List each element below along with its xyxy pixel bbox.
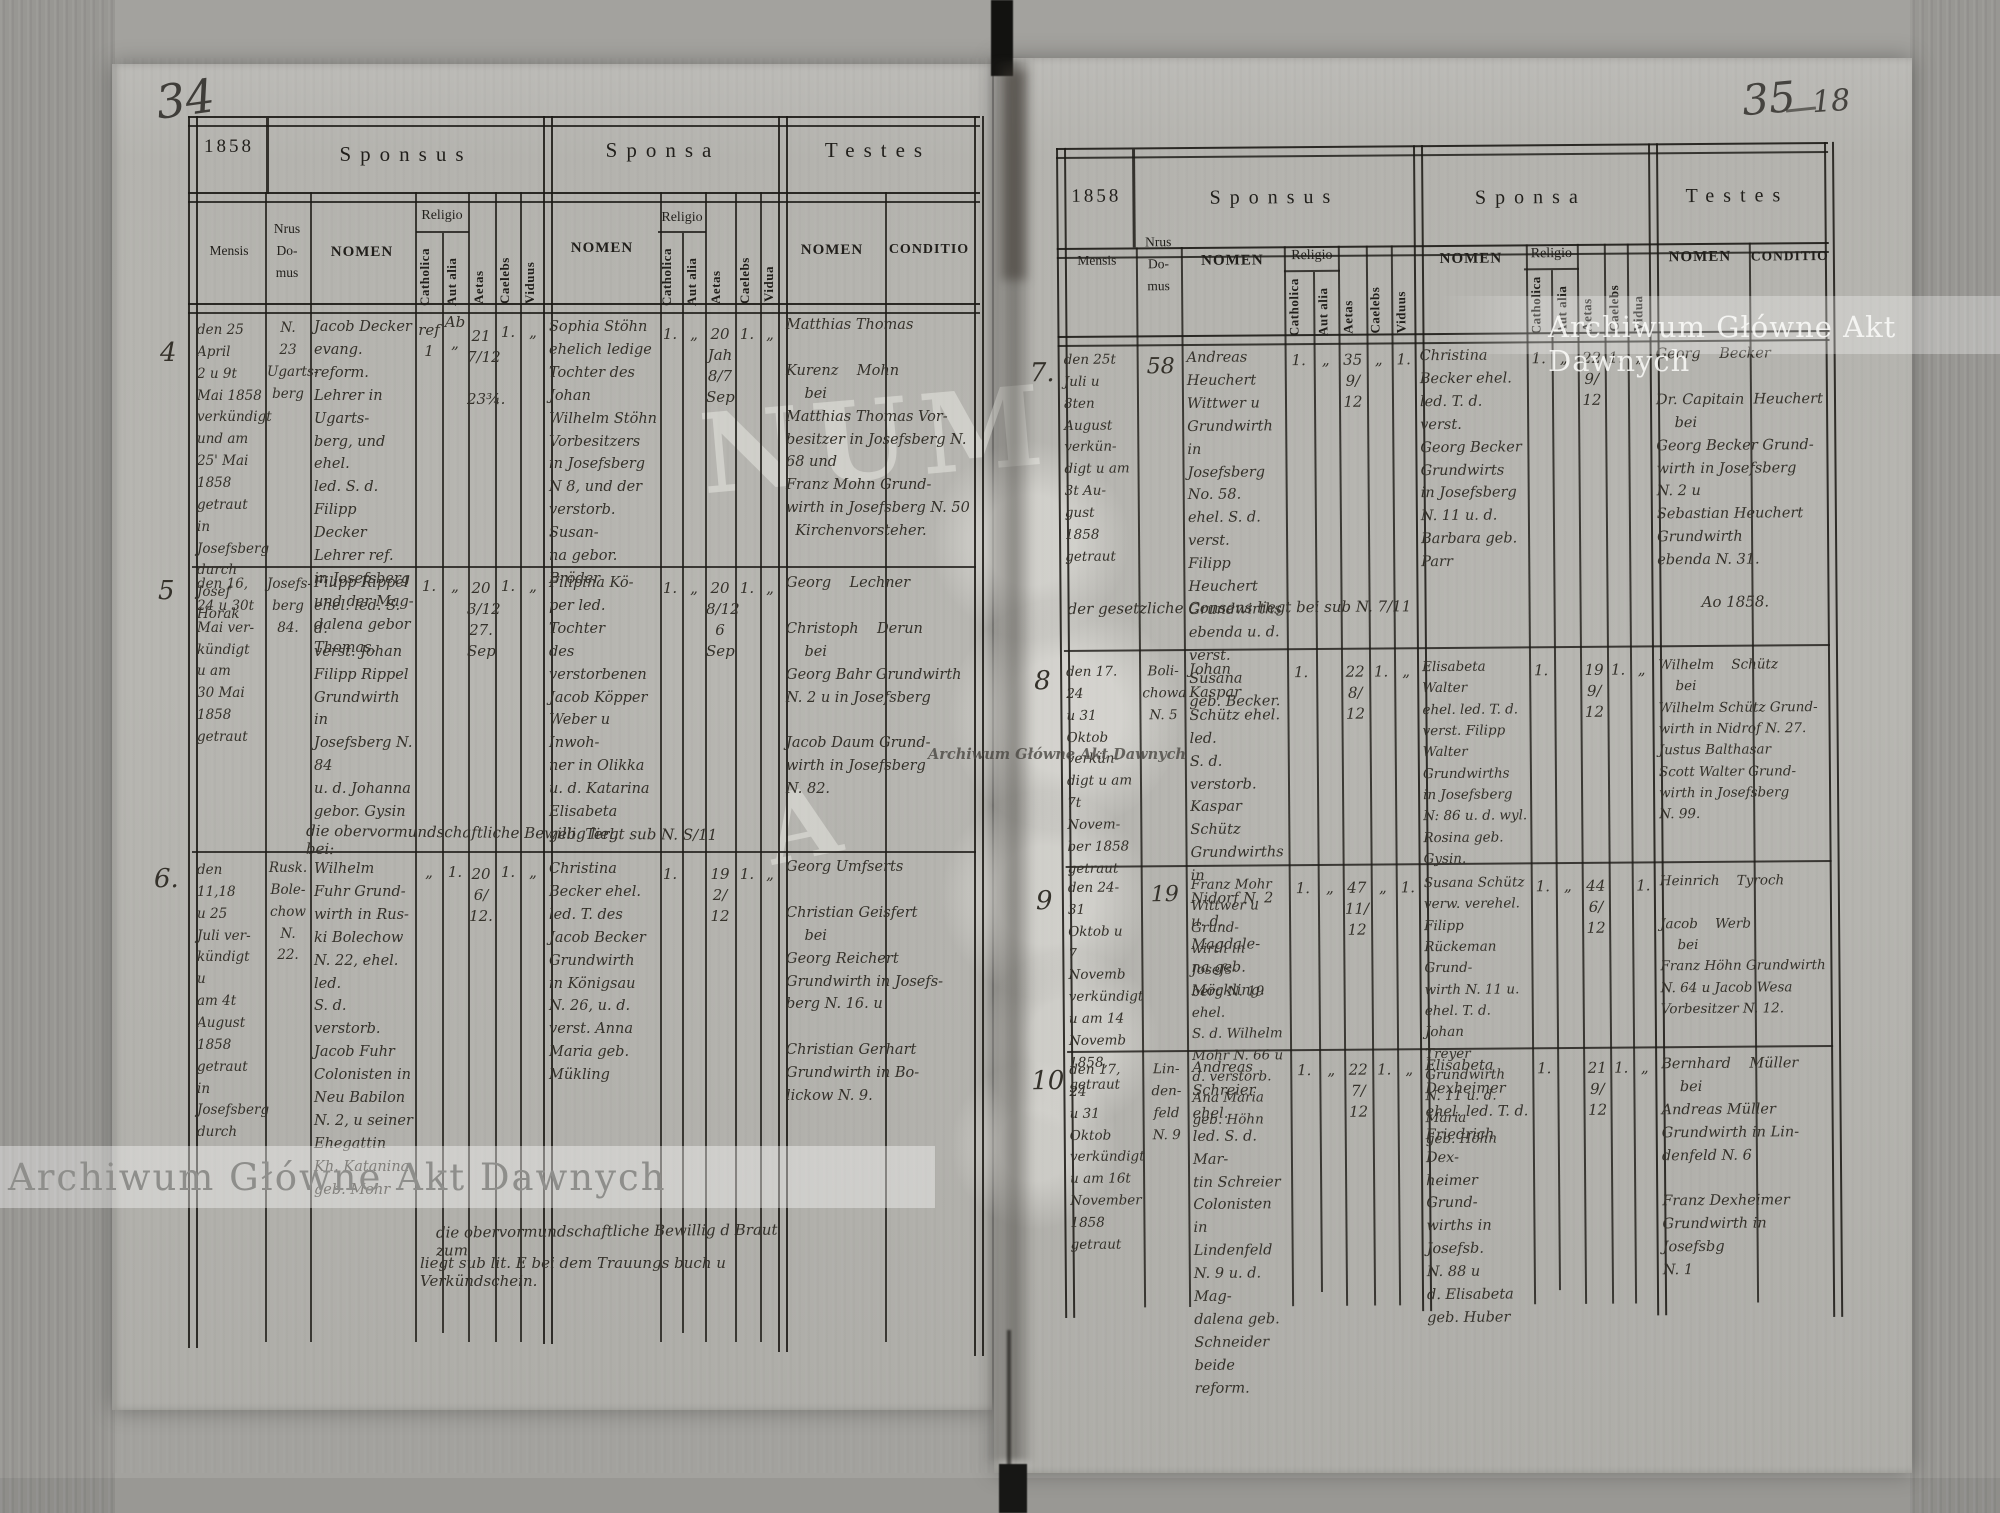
catholica-header: Catholica [417, 236, 433, 306]
house-number-cell: 19 [1144, 877, 1186, 913]
mensis-header: Mensis [1059, 253, 1135, 268]
sponsa-autalia-cell: „ [684, 324, 704, 345]
sponsus-catholica-cell: „ [416, 862, 442, 883]
religio-header: Religio [414, 208, 470, 223]
aetas-header: Aetas [1340, 284, 1356, 334]
sponsa-catholica-cell: 1. [658, 324, 682, 345]
sponsa-vidua-cell: „ [1634, 1057, 1655, 1078]
religio-header: Religio [656, 210, 708, 225]
entry-number: 9 [1036, 886, 1053, 916]
binding-smudge [1002, 70, 1026, 280]
sponsus-viduus-cell: 1. [1397, 877, 1419, 898]
sponsus-caelebs-cell: „ [1372, 877, 1394, 898]
entry-number: 6. [154, 864, 179, 894]
sponsus-autalia-cell: „ [1315, 350, 1337, 371]
marginal-note: die obervormundschaftliche Bewillig lieg… [306, 822, 746, 863]
conditio-header: CONDITIO [1751, 248, 1825, 265]
sponsus-caelebs-cell: 1. [496, 862, 520, 883]
aetas-header: Aetas [471, 248, 487, 304]
aut-alia-header: Aut alia [444, 240, 460, 306]
sponsus-viduus-cell: „ [521, 862, 545, 883]
sponsa-name-cell: Sophia Stöhn ehelich ledige Tochter des … [549, 316, 657, 591]
sponsus-catholica-cell: 1. [1288, 662, 1314, 683]
viduus-header: Viduus [1393, 275, 1409, 333]
religio-header: Religio [1524, 246, 1579, 262]
nomen-header: NOMEN [1183, 252, 1282, 270]
testes-cell: Bernhard Müller bei Andreas Müller Grund… [1661, 1052, 1833, 1282]
sponsus-autalia-cell: „ [1319, 878, 1341, 899]
house-number-cell: Rusk. Bole- chow N. 22. [267, 858, 309, 967]
nomen-header: NOMEN [782, 242, 882, 259]
sponsus-catholica-cell: 1. [416, 576, 442, 597]
sponsa-catholica-cell: 1. [1533, 1058, 1555, 1079]
page-number-left: 34 [153, 68, 218, 130]
sponsus-name-cell: Andreas Schreier ehel. led. S. d. Mar- t… [1192, 1056, 1291, 1400]
caelebs-header: Caelebs [737, 240, 753, 304]
testes-cell: Matthias Thomas Kurenz Mohn bei Matthias… [786, 314, 972, 543]
house-number-cell: Josefs- berg 84. [267, 574, 309, 640]
mensis-cell: den 25t Juli u 8ten August verkün- digt … [1064, 349, 1134, 568]
aetas-header: Aetas [708, 248, 724, 304]
sponsus-viduus-cell: 1. [1393, 349, 1415, 370]
binding-seam-line [1007, 1330, 1011, 1475]
catholica-header: Catholica [659, 236, 675, 306]
sponsa-caelebs-cell: 1. [1611, 1058, 1631, 1079]
mensis-header: Mensis [194, 244, 264, 259]
scanned-register-page: NUM A 1858 Sponsus Sponsa Testes Mensis … [0, 0, 2000, 1513]
sponsus-aetas-cell: 35 9/ 12 [1340, 350, 1366, 413]
sponsa-vidua-cell: „ [760, 578, 780, 599]
nrus-header: Do- [266, 244, 308, 259]
sponsa-caelebs-cell: 1. [1608, 660, 1628, 681]
vidua-header: Vidua [761, 244, 777, 302]
sponsa-title: Sponsa [548, 138, 778, 163]
viduus-header: Viduus [522, 242, 538, 304]
scanner-background-right [1910, 0, 2000, 1513]
mensis-cell: den 16, 24 u 30t Mai ver- kündigt u am 3… [197, 574, 263, 749]
sponsus-catholica-cell: 1. [1291, 1060, 1317, 1081]
sponsus-aetas-cell: 22 7/ 12 [1345, 1060, 1371, 1123]
sponsus-viduus-cell: „ [1395, 661, 1417, 682]
page-number-right: 35 [1740, 72, 1798, 125]
nrus-header: Nrus [266, 222, 308, 237]
year-label: 1858 [194, 136, 264, 158]
archive-watermark-center: Archiwum Główne Akt Dawnych [928, 746, 1186, 763]
entry-number: 5 [158, 576, 175, 606]
sponsus-aetas-cell: 47 11/ 12 [1344, 878, 1370, 941]
conditio-header: CONDITIO [884, 242, 974, 258]
table-header-line [188, 192, 980, 203]
nomen-header: NOMEN [312, 244, 412, 261]
aut-alia-header: Aut alia [1315, 276, 1331, 336]
sponsa-catholica-cell: 1. [658, 864, 682, 885]
sponsa-catholica-cell: 1. [658, 578, 682, 599]
sponsa-aetas-cell: 44 6/ 12 [1583, 876, 1609, 939]
religio-underline [658, 231, 706, 233]
sponsa-vidua-cell: „ [760, 324, 780, 345]
nrus-header: mus [266, 266, 308, 281]
catholica-header: Catholica [1286, 274, 1302, 336]
sponsus-viduus-cell: „ [521, 576, 545, 597]
sponsus-name-cell: Filipp Rippel ehel. led. S. d. verst. Jo… [314, 572, 414, 824]
nrus-header: Nrus [1137, 235, 1180, 250]
sponsus-autalia-cell: 1. [443, 862, 467, 883]
sponsus-title: Sponsus [1135, 185, 1413, 210]
sponsa-title: Sponsa [1415, 185, 1646, 210]
religio-header: Religio [1284, 248, 1340, 264]
sponsus-caelebs-cell: 1. [496, 576, 520, 597]
sponsus-aetas-cell: 21 7/12 23¾. [467, 326, 495, 410]
year-label: 1858 [1062, 185, 1130, 208]
caelebs-header: Caelebs [497, 240, 513, 304]
year-cell-divider [266, 118, 269, 194]
sponsa-name-cell: Filipina Kö- per led. Tochter des versto… [549, 572, 657, 847]
nomen-header: NOMEN [547, 240, 657, 257]
nomen-header: NOMEN [1653, 249, 1747, 267]
entry-number: 8 [1034, 666, 1051, 696]
caelebs-header: Caelebs [1367, 275, 1383, 333]
entry-number: 10 [1031, 1066, 1064, 1096]
archive-watermark-bottom-left: Archiwum Główne Akt Dawnych [8, 1156, 667, 1199]
sponsus-autalia-cell: „ [443, 576, 467, 597]
testes-cell: Georg Umfserts Christian Geisfert bei Ge… [786, 856, 972, 1108]
aut-alia-header: Aut alia [684, 240, 700, 306]
sponsus-aetas-cell: 20 3/12 27. Sep [467, 578, 495, 662]
sponsus-title: Sponsus [270, 142, 542, 167]
testes-title: Testes [1650, 184, 1824, 208]
mensis-cell: den 17, 24 u 31 Oktob verkündigt u am 16… [1069, 1059, 1139, 1256]
sponsa-vidua-cell: „ [760, 864, 780, 885]
marginal-note: liegt sub lit. E bei dem Trauungs buch u… [420, 1254, 820, 1290]
folio-number-right: 18 [1811, 83, 1852, 121]
testes-cell: Wilhelm Schütz bei Wilhelm Schütz Grund-… [1658, 654, 1829, 826]
sponsa-aetas-cell: 19 9/ 12 [1581, 660, 1607, 723]
house-number-cell: Boli- chowa N. 5 [1142, 661, 1185, 727]
sponsa-vidua-cell: „ [1631, 659, 1652, 680]
sponsa-catholica-cell: 1. [1530, 660, 1552, 681]
sponsa-catholica-cell: 1. [1532, 876, 1554, 897]
religio-underline [1524, 268, 1579, 270]
sponsus-autalia-cell: Ab „ [443, 312, 467, 354]
sponsa-autalia-cell: „ [1557, 876, 1579, 897]
sponsus-viduus-cell: „ [1398, 1059, 1420, 1080]
testes-cell: Heinrich Tyroch Jacob Werb bei Franz Höh… [1660, 870, 1831, 1021]
sponsus-autalia-cell: „ [1320, 1060, 1342, 1081]
sponsus-catholica-cell: 1. [1286, 350, 1312, 371]
sponsa-vidua-cell: 1. [1633, 875, 1654, 896]
sponsa-aetas-cell: 19 2/ 12 [706, 864, 734, 927]
sponsa-name-cell: Elisabeta Dexheimer ehel. led. T. d. Fri… [1425, 1054, 1531, 1330]
archive-watermark-top-right: Archiwum Główne Akt Dawnych [1548, 310, 2000, 378]
religio-underline [416, 231, 469, 233]
entry-number: 4 [160, 338, 177, 368]
testes-title: Testes [782, 138, 974, 163]
house-number-cell: N. 23 Ugarts- berg [267, 318, 309, 405]
sponsa-name-cell: Elisabeta Walter ehel. led. T. d. verst.… [1422, 656, 1528, 870]
testes-cell: Georg Lechner Christoph Derun bei Georg … [786, 572, 972, 801]
sponsa-caelebs-cell: 1. [736, 578, 758, 599]
sponsus-caelebs-cell: „ [1368, 349, 1390, 370]
sponsa-autalia-cell: „ [684, 578, 704, 599]
sponsus-caelebs-cell: 1. [1373, 1059, 1395, 1080]
sponsa-name-cell: Christina Becker ehel. led. T. des Jacob… [549, 858, 657, 1087]
nrus-header: Do- [1137, 257, 1180, 272]
book-spine-bottom [999, 1464, 1027, 1513]
sponsus-caelebs-cell: 1. [496, 322, 520, 343]
sponsus-catholica-cell: 1. [1290, 878, 1316, 899]
sponsus-aetas-cell: 20 6/ 12. [467, 864, 495, 927]
sponsa-caelebs-cell: 1. [736, 864, 758, 885]
sponsus-caelebs-cell: 1. [1370, 661, 1392, 682]
sponsus-aetas-cell: 22 8/ 12 [1342, 662, 1368, 725]
sponsa-aetas-cell: 20 Jah 8/7 Sep [706, 324, 734, 408]
sponsa-aetas-cell: 21 9/ 12 [1584, 1058, 1610, 1121]
nomen-header: NOMEN [1418, 250, 1524, 268]
table-border-line [188, 116, 980, 127]
sponsus-catholica-cell: ref 1 [416, 320, 442, 362]
house-number-cell: 58 [1140, 349, 1182, 385]
scanner-background-left [0, 0, 115, 1513]
table-header-line [188, 303, 980, 314]
mensis-cell: den 17. 24 u 31 Oktob verkün- digt u am … [1066, 661, 1136, 880]
house-number-cell: Lin- den- feld N. 9 [1145, 1059, 1188, 1147]
sponsa-name-cell: Christina Becker ehel. led. T. d. verst.… [1420, 344, 1526, 574]
sponsus-viduus-cell: „ [521, 322, 545, 343]
marginal-note: Ao 1858. [1702, 592, 1822, 611]
mensis-cell: den 11,18 u 25 Juli ver- kündigt u am 4t… [197, 860, 263, 1144]
nrus-header: mus [1137, 279, 1180, 294]
sponsa-aetas-cell: 20 8/12 6 Sep [706, 578, 734, 662]
sponsa-caelebs-cell: 1. [736, 324, 758, 345]
